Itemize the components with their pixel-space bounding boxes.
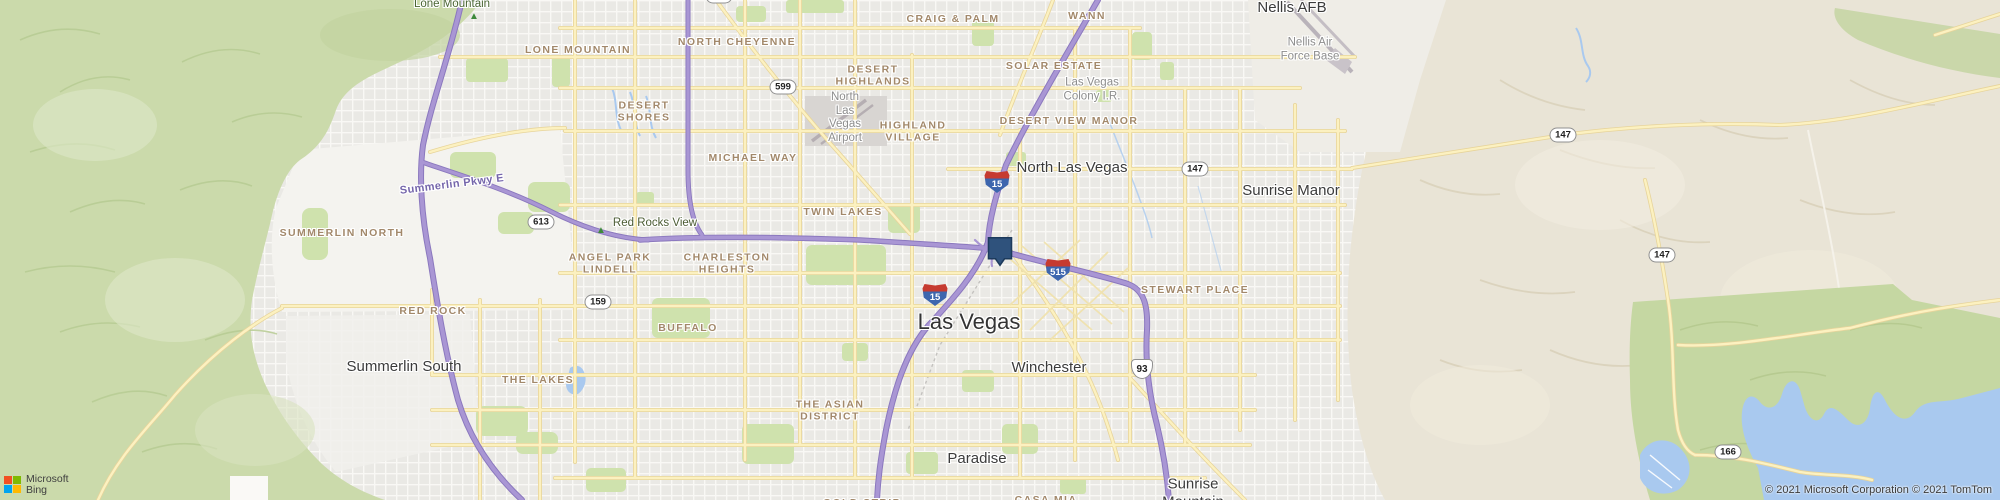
map-canvas[interactable]: Lone Mountain▲LONE MOUNTAINNORTH CHEYENN… [0,0,2000,500]
map-pushpin[interactable] [986,235,1014,267]
route-shield-159: 159 [585,295,612,310]
tile-patch [230,476,268,500]
pushpin-shape [989,238,1012,265]
logo-line2: Bing [26,484,47,496]
logo-line1: Microsoft [26,473,69,485]
bing-logo[interactable]: Microsoft Bing [4,474,69,497]
route-shield-147-c: 147 [1649,248,1676,263]
microsoft-logo-icon [4,476,21,493]
north-las-vegas-airport-area [805,96,887,146]
route-shield-147-a: 147 [1182,162,1209,177]
route-shield-147-b: 147 [1550,128,1577,143]
bing-wordmark: Microsoft Bing [26,474,69,497]
route-shield-599: 599 [770,80,797,95]
route-shield-166: 166 [1715,445,1742,460]
route-shield-613: 613 [528,215,555,230]
copyright-notice: © 2021 Microsoft Corporation © 2021 TomT… [1765,484,1992,496]
